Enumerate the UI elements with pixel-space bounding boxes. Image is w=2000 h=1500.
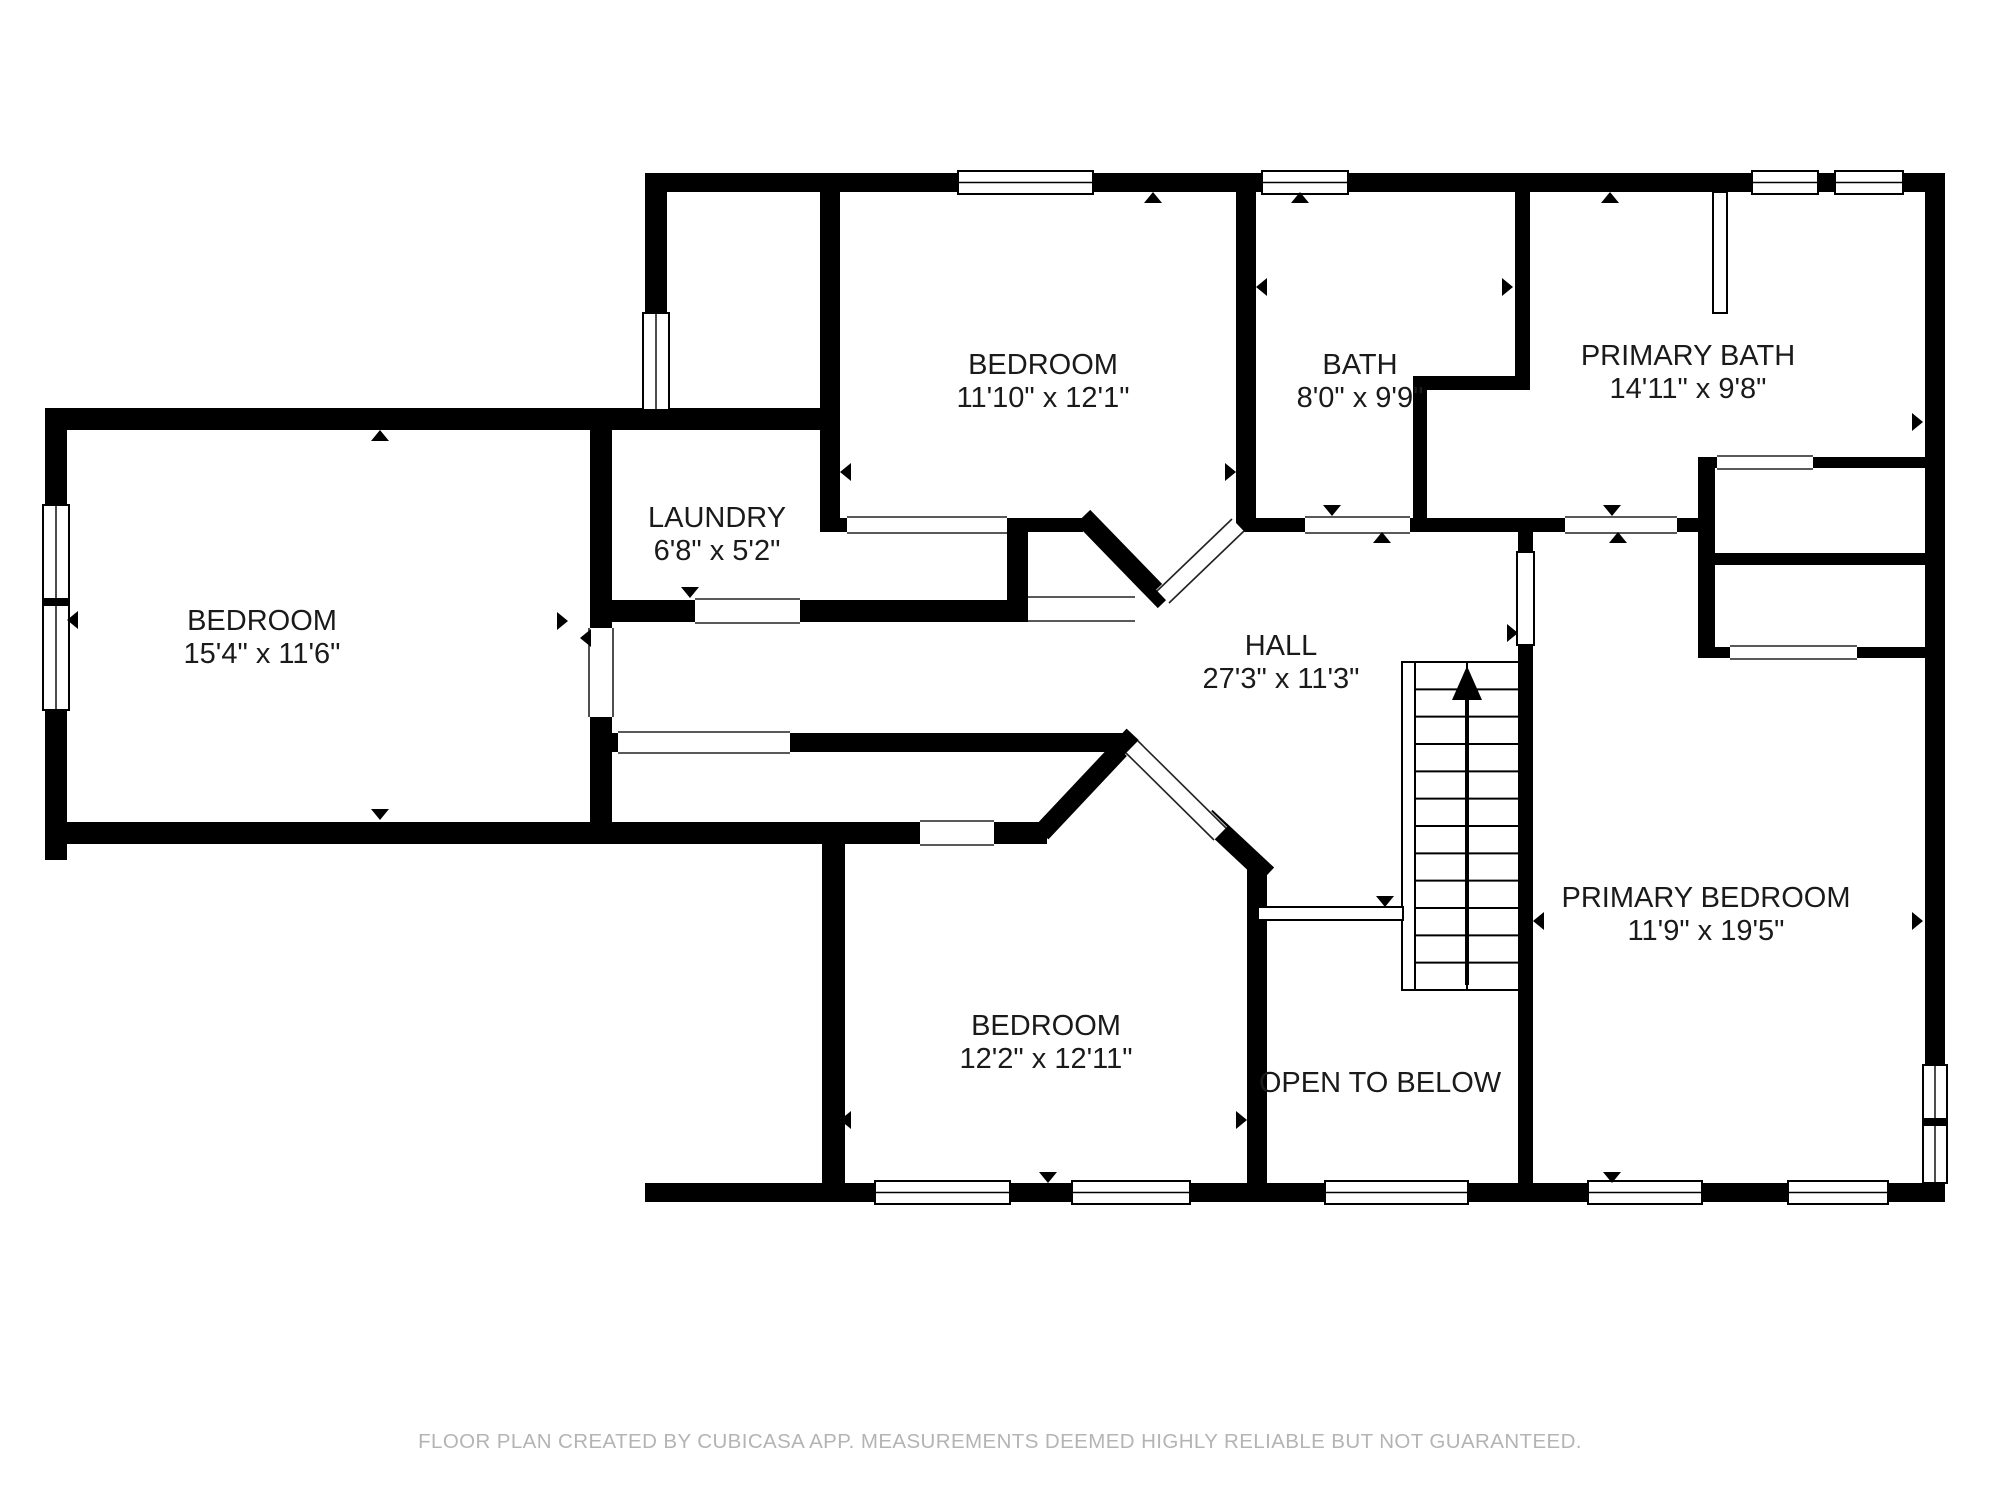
room-label-primary-bath: PRIMARY BATH [1581, 340, 1795, 372]
door-strip [1517, 552, 1534, 645]
window-mullion [43, 598, 69, 606]
wall [1236, 518, 1305, 532]
room-label-primary-bedroom: PRIMARY BEDROOM [1562, 882, 1851, 914]
measurement-arrow [1323, 505, 1341, 516]
measurement-arrow [580, 629, 591, 647]
room-dims-laundry: 6'8" x 5'2" [654, 535, 781, 567]
room-dims-hall: 27'3" x 11'3" [1203, 663, 1360, 695]
wall [1236, 192, 1256, 532]
door-opening [920, 820, 994, 846]
room-label-bedroom-top: BEDROOM [968, 349, 1118, 381]
measurement-arrow [371, 430, 389, 441]
door-opening [1565, 516, 1677, 534]
door-opening-edge [1126, 753, 1214, 840]
wall [820, 192, 840, 532]
wall [1925, 173, 1945, 1202]
room-dims-bedroom-left: 15'4" x 11'6" [184, 638, 341, 670]
measurement-arrow [1039, 1172, 1057, 1183]
door-opening-diagonal [1163, 525, 1238, 597]
measurement-arrow [1533, 912, 1544, 930]
measurement-arrow [1236, 1111, 1247, 1129]
diagonal-wall [1090, 524, 1158, 594]
wall [1698, 457, 1715, 658]
measurement-arrow [1376, 896, 1394, 907]
room-label-bath: BATH [1322, 349, 1397, 381]
railing [1258, 907, 1403, 920]
wall [1518, 532, 1533, 552]
measurement-arrow [1603, 505, 1621, 516]
room-label-laundry: LAUNDRY [648, 502, 786, 534]
room-dims-primary-bath: 14'11" x 9'8" [1610, 373, 1767, 405]
wall [1518, 645, 1533, 1202]
door-opening [847, 516, 1007, 534]
room-label-bedroom-bottom: BEDROOM [971, 1010, 1121, 1042]
wall [45, 408, 645, 430]
diagonal-wall [1048, 742, 1127, 826]
wall [645, 408, 838, 430]
measurement-arrow [1256, 278, 1267, 296]
floor-plan-canvas: BEDROOM15'4" x 11'6"LAUNDRY6'8" x 5'2"BE… [0, 0, 2000, 1500]
wall [1413, 376, 1530, 390]
door-opening-diagonal [1132, 747, 1220, 834]
measurement-arrow [1912, 912, 1923, 930]
door-opening [618, 731, 790, 754]
glass-partition [1713, 192, 1727, 313]
measurement-arrow [1502, 278, 1513, 296]
stair-up-arrow [1452, 666, 1482, 700]
room-label-open-to-below: OPEN TO BELOW [1259, 1067, 1502, 1099]
door-opening [695, 598, 800, 624]
measurement-arrow [1912, 413, 1923, 431]
door-opening [1305, 516, 1410, 534]
wall [1715, 553, 1925, 565]
wall [1515, 192, 1530, 388]
door-opening-edge [1138, 741, 1226, 828]
stair-rail [1402, 662, 1415, 990]
room-label-hall: HALL [1245, 630, 1318, 662]
measurement-arrow [1225, 463, 1236, 481]
window-mullion [1923, 1118, 1947, 1126]
wall [590, 430, 612, 822]
wall [1410, 518, 1565, 532]
measurement-arrow [1144, 192, 1162, 203]
room-dims-bath: 8'0" x 9'9" [1297, 382, 1424, 414]
measurement-arrow [1601, 192, 1619, 203]
room-dims-bedroom-bottom: 12'2" x 12'11" [959, 1043, 1132, 1075]
measurement-arrow [557, 612, 568, 630]
door-opening [588, 628, 614, 717]
room-dims-primary-bedroom: 11'9" x 19'5" [1628, 915, 1785, 947]
wall [590, 600, 1028, 622]
wall [1007, 518, 1028, 622]
door-opening [1730, 645, 1857, 660]
room-label-bedroom-left: BEDROOM [187, 605, 337, 637]
measurement-arrow [371, 809, 389, 820]
room-dims-bedroom-top: 11'10" x 12'1" [956, 382, 1129, 414]
wall [822, 822, 845, 1202]
door-opening [1717, 455, 1813, 470]
measurement-arrow [681, 587, 699, 598]
wall [45, 822, 920, 844]
door-opening [1028, 596, 1135, 622]
floor-plan-page: BEDROOM15'4" x 11'6"LAUNDRY6'8" x 5'2"BE… [0, 0, 2000, 1500]
measurement-arrow [840, 463, 851, 481]
footer-disclaimer: FLOOR PLAN CREATED BY CUBICASA APP. MEAS… [0, 1430, 2000, 1454]
